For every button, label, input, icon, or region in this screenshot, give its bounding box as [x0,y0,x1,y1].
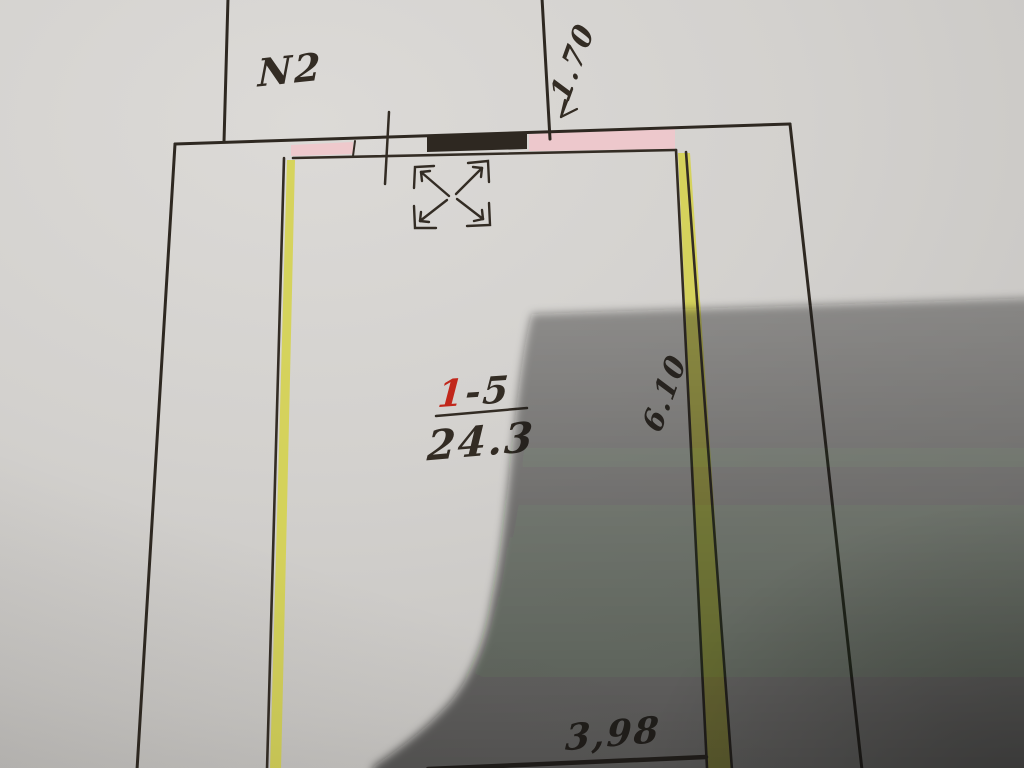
room-n2-wall-right [542,0,550,139]
wall-right-outer [790,124,862,768]
door-opening-endcap [353,141,355,156]
room-code-numerator: 1 [436,370,467,416]
pink-highlight-top-wall-left [291,142,353,156]
floor-plan-photo: N2 1.70 1-5 24.3 6.10 3,98 [0,0,1024,768]
wall-left-outer [137,144,175,768]
room-area-value: 24.3 [426,417,536,468]
room-code-label: 1-5 [436,371,511,413]
room-n2-wall-left [224,0,228,142]
floor-plan-drawing [0,0,1024,768]
room-n2-label: N2 [258,47,323,92]
room-code-suffix: -5 [464,367,512,414]
stove-icon [414,161,490,228]
dimension-bottom: 3,98 [564,712,661,757]
door-opening-mark [385,112,389,184]
